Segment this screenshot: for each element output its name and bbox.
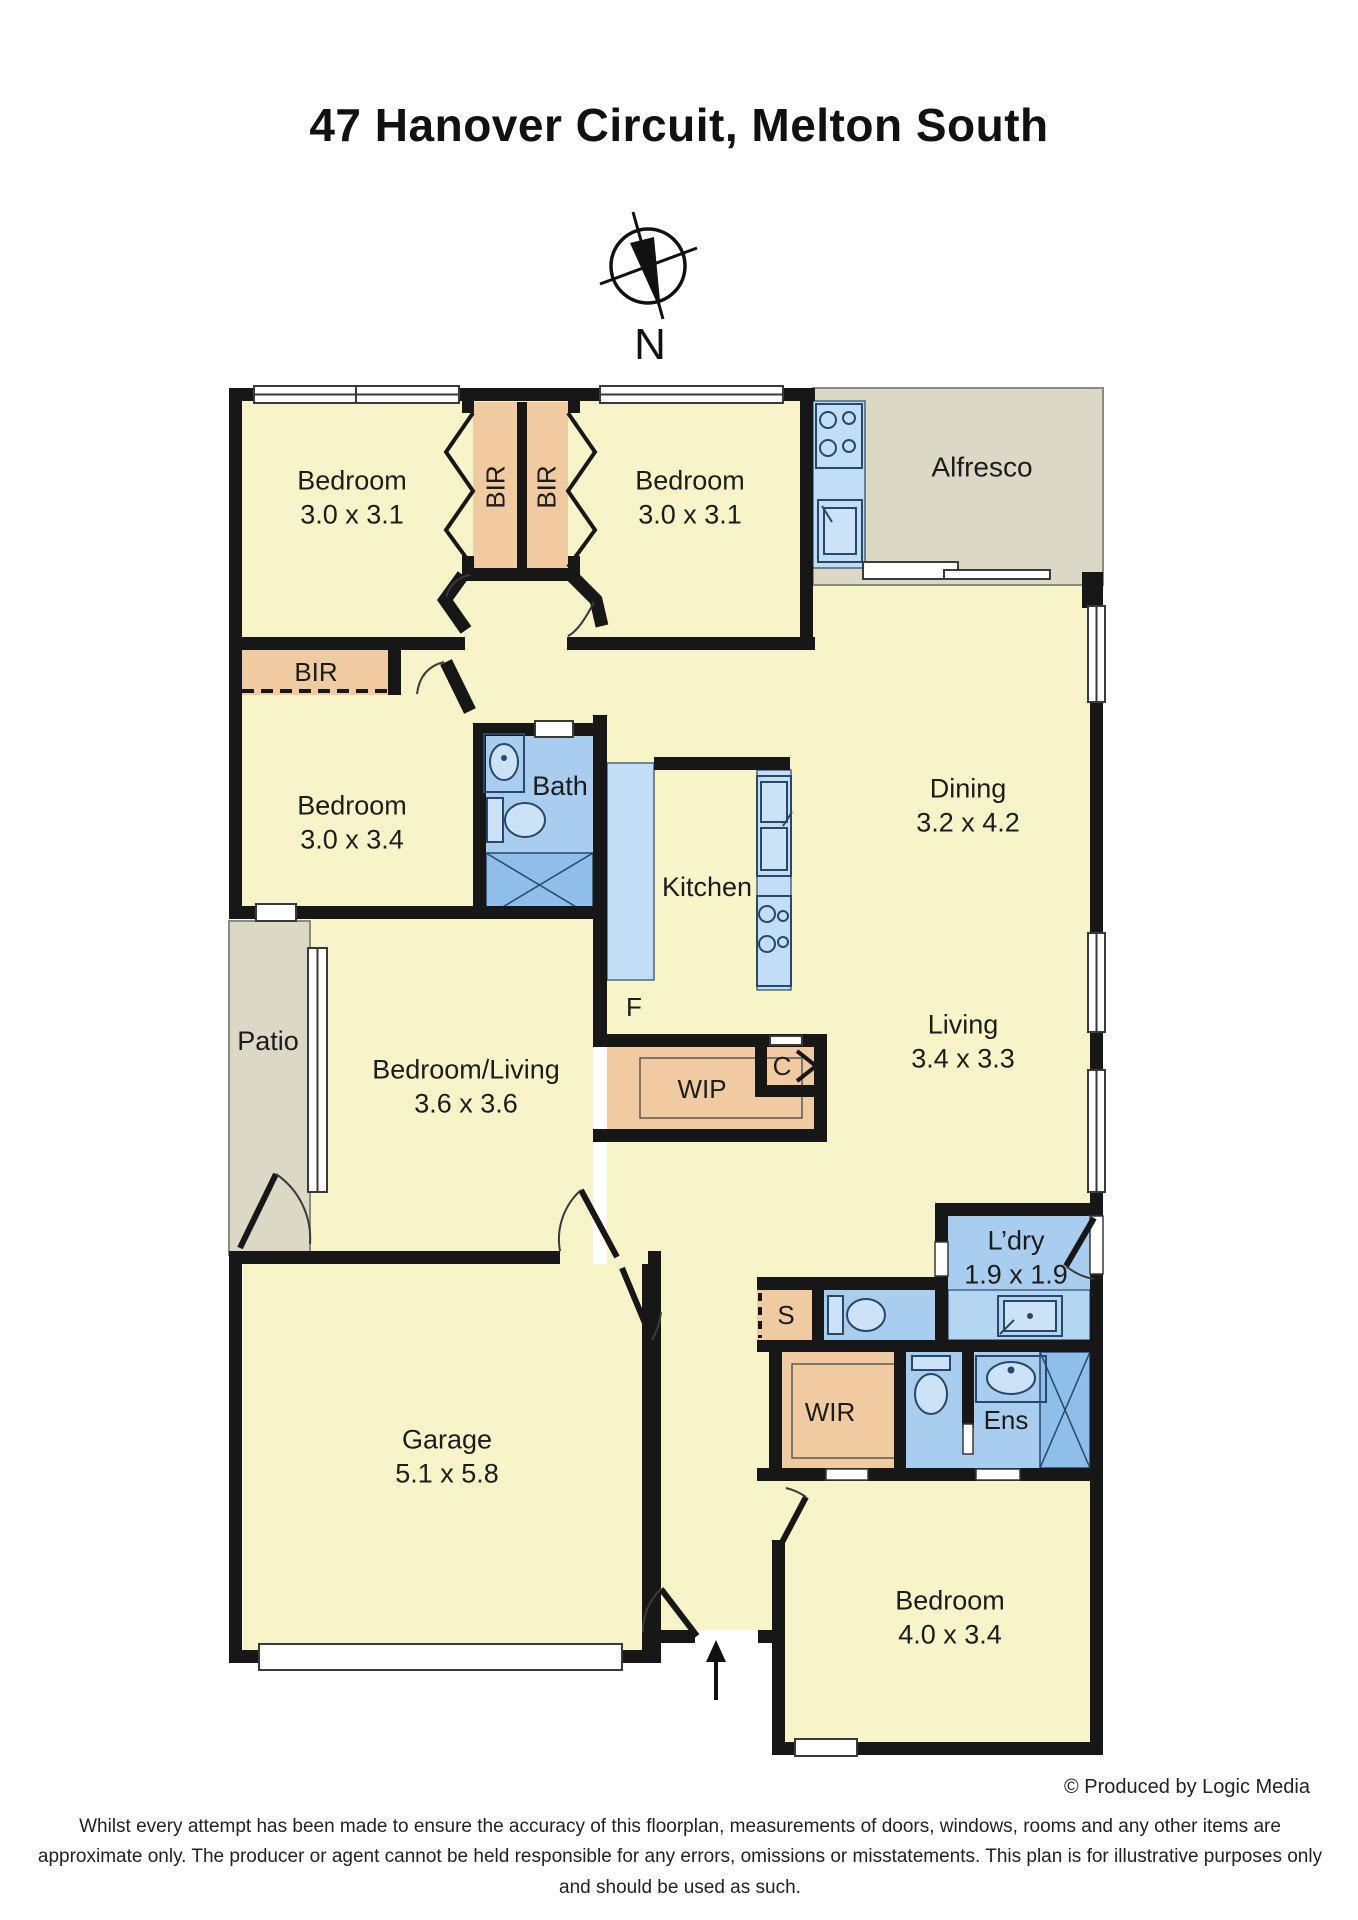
- room-label-bedroom-living: Bedroom/Living 3.6 x 3.6: [372, 1053, 560, 1121]
- room-label-patio: Patio: [237, 1025, 299, 1059]
- room-label-bedroom1: Bedroom 3.0 x 3.1: [297, 464, 407, 532]
- room-dims: 1.9 x 1.9: [964, 1258, 1068, 1292]
- room-label-kitchen: Kitchen: [662, 871, 752, 905]
- room-dims: 3.0 x 3.1: [635, 498, 745, 532]
- entry-arrow: [706, 1640, 726, 1700]
- room-label-bir1: BIR: [481, 465, 512, 508]
- room-dims: 3.0 x 3.4: [297, 823, 407, 857]
- bath-toilet-bowl: [505, 803, 545, 837]
- room-name: Bedroom: [297, 789, 407, 823]
- room-label-bir3: BIR: [294, 656, 337, 689]
- room-label-bedroom3: Bedroom 3.0 x 3.4: [297, 789, 407, 857]
- ens-toilet-tank: [912, 1356, 950, 1370]
- producer-credit: © Produced by Logic Media: [0, 1776, 1310, 1799]
- room-label-store: S: [777, 1299, 794, 1332]
- label-fridge: F: [626, 991, 642, 1024]
- room-dims: 3.2 x 4.2: [916, 806, 1020, 840]
- room-label-bir2: BIR: [532, 465, 563, 508]
- wc-toilet-tank: [828, 1296, 843, 1334]
- room-dims: 3.0 x 3.1: [297, 498, 407, 532]
- room-name: Living: [911, 1008, 1015, 1042]
- room-name: Bedroom: [297, 464, 407, 498]
- room-dims: 5.1 x 5.8: [395, 1457, 499, 1491]
- room-label-dining: Dining 3.2 x 4.2: [916, 772, 1020, 840]
- room-label-living: Living 3.4 x 3.3: [911, 1008, 1015, 1076]
- room-dims: 4.0 x 3.4: [895, 1618, 1005, 1652]
- room-label-bedroom2: Bedroom 3.0 x 3.1: [635, 464, 745, 532]
- ens-toilet-bowl: [915, 1374, 947, 1414]
- room-dims: 3.6 x 3.6: [372, 1087, 560, 1121]
- wc-toilet-bowl: [847, 1299, 885, 1331]
- disclaimer-text: Whilst every attempt has been made to en…: [34, 1812, 1326, 1903]
- room-dims: 3.4 x 3.3: [911, 1042, 1015, 1076]
- room-name: Dining: [916, 772, 1020, 806]
- floorplan-drawing: [0, 0, 1358, 1920]
- compass-north-label: N: [634, 320, 666, 370]
- bath-toilet-tank: [487, 798, 503, 842]
- room-label-bath: Bath: [532, 770, 588, 804]
- room-name: Garage: [395, 1423, 499, 1457]
- room-label-wip: WIP: [677, 1073, 726, 1106]
- room-name: Bedroom/Living: [372, 1053, 560, 1087]
- room-name: Bedroom: [895, 1584, 1005, 1618]
- room-name: Bedroom: [635, 464, 745, 498]
- floorplan-page: 47 Hanover Circuit, Melton South N Bedro…: [0, 0, 1358, 1920]
- patio-area: [229, 921, 310, 1255]
- room-label-alfresco: Alfresco: [931, 450, 1032, 485]
- page-title: 47 Hanover Circuit, Melton South: [0, 98, 1358, 152]
- room-label-garage: Garage 5.1 x 5.8: [395, 1423, 499, 1491]
- room-label-wir: WIR: [805, 1396, 856, 1429]
- room-label-laundry: L’dry 1.9 x 1.9: [964, 1224, 1068, 1292]
- compass-icon: [600, 212, 697, 319]
- room-label-cupboard: C: [773, 1050, 792, 1083]
- room-name: L’dry: [964, 1224, 1068, 1258]
- room-label-bedroom4: Bedroom 4.0 x 3.4: [895, 1584, 1005, 1652]
- room-label-ens: Ens: [984, 1404, 1029, 1437]
